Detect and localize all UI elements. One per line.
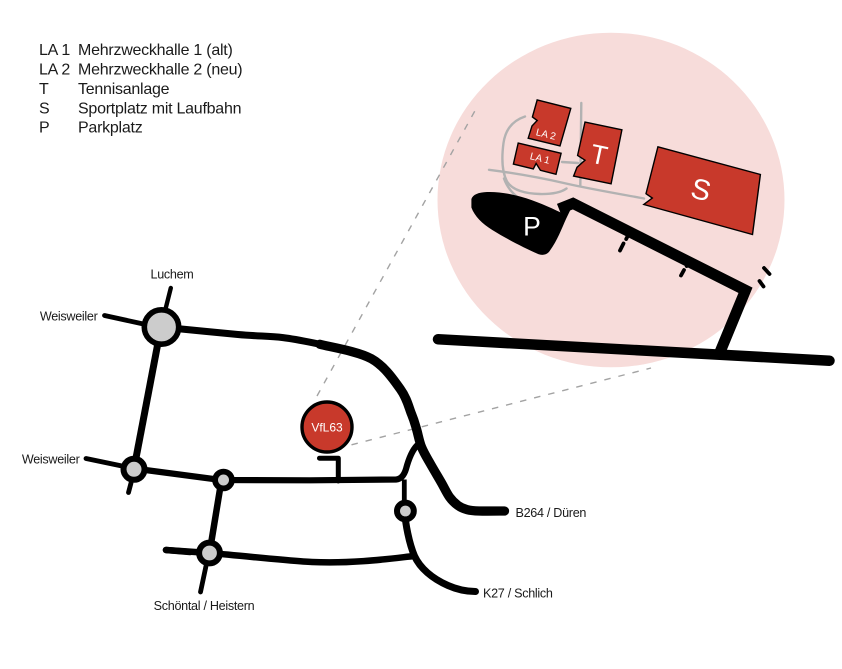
svg-text:Parkplatz: Parkplatz: [78, 120, 143, 137]
svg-text:Weisweiler: Weisweiler: [22, 453, 80, 467]
svg-text:LA 1: LA 1: [39, 42, 70, 59]
svg-text:S: S: [39, 101, 49, 118]
svg-text:P: P: [39, 120, 49, 137]
svg-text:Schöntal / Heistern: Schöntal / Heistern: [154, 599, 255, 613]
svg-text:B264 / Düren: B264 / Düren: [516, 506, 587, 520]
svg-text:Mehrzweckhalle 2 (neu): Mehrzweckhalle 2 (neu): [78, 61, 242, 78]
svg-text:Mehrzweckhalle 1 (alt): Mehrzweckhalle 1 (alt): [78, 42, 233, 59]
svg-text:P: P: [523, 212, 541, 242]
svg-text:VfL63: VfL63: [311, 421, 343, 435]
svg-text:LA 2: LA 2: [39, 61, 70, 78]
svg-text:Weisweiler: Weisweiler: [40, 310, 98, 324]
svg-text:K27 / Schlich: K27 / Schlich: [483, 587, 553, 601]
svg-text:Luchem: Luchem: [150, 268, 193, 282]
svg-text:Sportplatz mit Laufbahn: Sportplatz mit Laufbahn: [78, 101, 241, 118]
svg-text:T: T: [39, 81, 49, 98]
svg-text:Tennisanlage: Tennisanlage: [78, 81, 170, 98]
